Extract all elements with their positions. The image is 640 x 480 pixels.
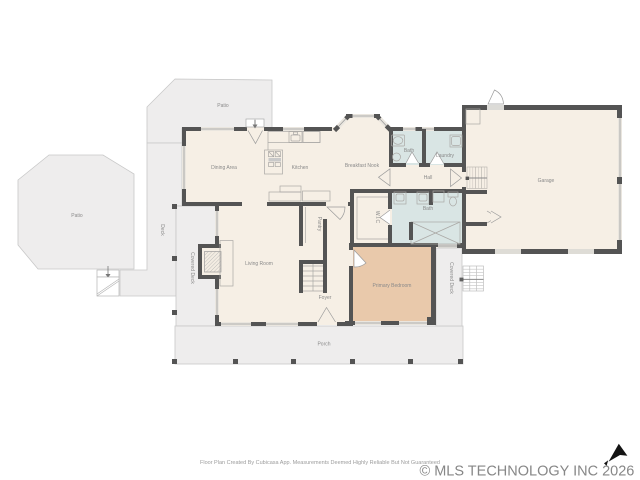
svg-text:Covered Deck: Covered Deck [189,252,195,284]
svg-text:Covered Deck: Covered Deck [448,262,454,294]
svg-text:Hall: Hall [424,175,433,181]
svg-text:Bath: Bath [404,148,415,154]
svg-text:Primary Bedroom: Primary Bedroom [373,283,412,289]
svg-text:Patio: Patio [217,103,229,109]
svg-text:Porch: Porch [317,342,330,348]
svg-text:© MLS TECHNOLOGY INC 2026: © MLS TECHNOLOGY INC 2026 [420,464,635,480]
svg-text:Living Room: Living Room [245,261,273,267]
svg-text:Breakfast Nook: Breakfast Nook [345,163,380,169]
svg-text:Bath: Bath [423,206,434,212]
svg-text:Foyer: Foyer [319,295,332,301]
svg-text:Dining Area: Dining Area [211,165,237,171]
svg-text:Deck: Deck [159,224,165,236]
svg-text:Floor Plan Created By Cubicasa: Floor Plan Created By Cubicasa App. Meas… [200,460,440,466]
svg-text:Garage: Garage [538,178,555,184]
svg-text:Pantry: Pantry [316,217,322,232]
svg-text:Patio: Patio [71,213,83,219]
svg-text:Kitchen: Kitchen [292,165,309,171]
svg-text:Laundry: Laundry [436,153,455,159]
svg-text:W.I.C: W.I.C [374,211,380,224]
